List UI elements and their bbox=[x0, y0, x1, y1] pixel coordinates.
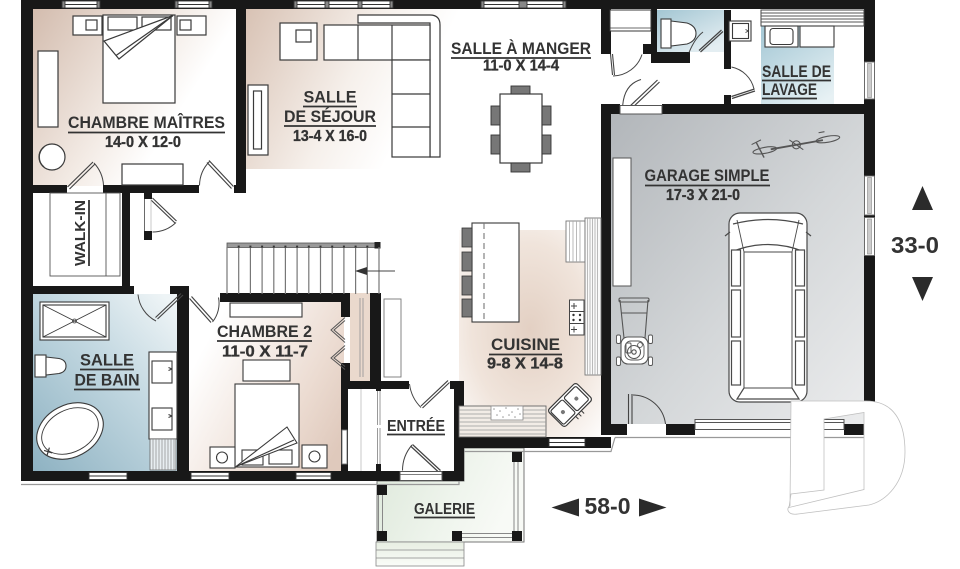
svg-text:33-0: 33-0 bbox=[891, 232, 939, 258]
svg-text:11-0 X 11-7: 11-0 X 11-7 bbox=[222, 344, 308, 361]
svg-text:17-3 X 21-0: 17-3 X 21-0 bbox=[666, 187, 740, 204]
svg-text:SALLE: SALLE bbox=[304, 88, 357, 107]
svg-text:LAVAGE: LAVAGE bbox=[762, 81, 817, 99]
svg-text:58-0: 58-0 bbox=[585, 493, 631, 519]
svg-text:ENTRÉE: ENTRÉE bbox=[387, 418, 445, 435]
svg-text:14-0 X 12-0: 14-0 X 12-0 bbox=[105, 134, 181, 151]
svg-text:GALERIE: GALERIE bbox=[414, 501, 475, 518]
svg-text:DE BAIN: DE BAIN bbox=[75, 371, 140, 390]
svg-text:CHAMBRE 2: CHAMBRE 2 bbox=[217, 322, 312, 341]
svg-text:WALK-IN: WALK-IN bbox=[72, 200, 89, 266]
svg-text:GARAGE SIMPLE: GARAGE SIMPLE bbox=[645, 166, 770, 185]
svg-text:9-8 X 14-8: 9-8 X 14-8 bbox=[487, 356, 563, 373]
svg-text:13-4 X 16-0: 13-4 X 16-0 bbox=[293, 128, 367, 145]
svg-text:DE SÉJOUR: DE SÉJOUR bbox=[284, 107, 376, 126]
svg-text:CHAMBRE MAÎTRES: CHAMBRE MAÎTRES bbox=[68, 113, 225, 132]
svg-text:SALLE DE: SALLE DE bbox=[762, 63, 831, 81]
svg-text:11-0 X 14-4: 11-0 X 14-4 bbox=[483, 58, 559, 75]
svg-text:CUISINE: CUISINE bbox=[491, 335, 560, 354]
svg-text:SALLE: SALLE bbox=[80, 351, 134, 370]
svg-text:SALLE À MANGER: SALLE À MANGER bbox=[451, 39, 591, 58]
